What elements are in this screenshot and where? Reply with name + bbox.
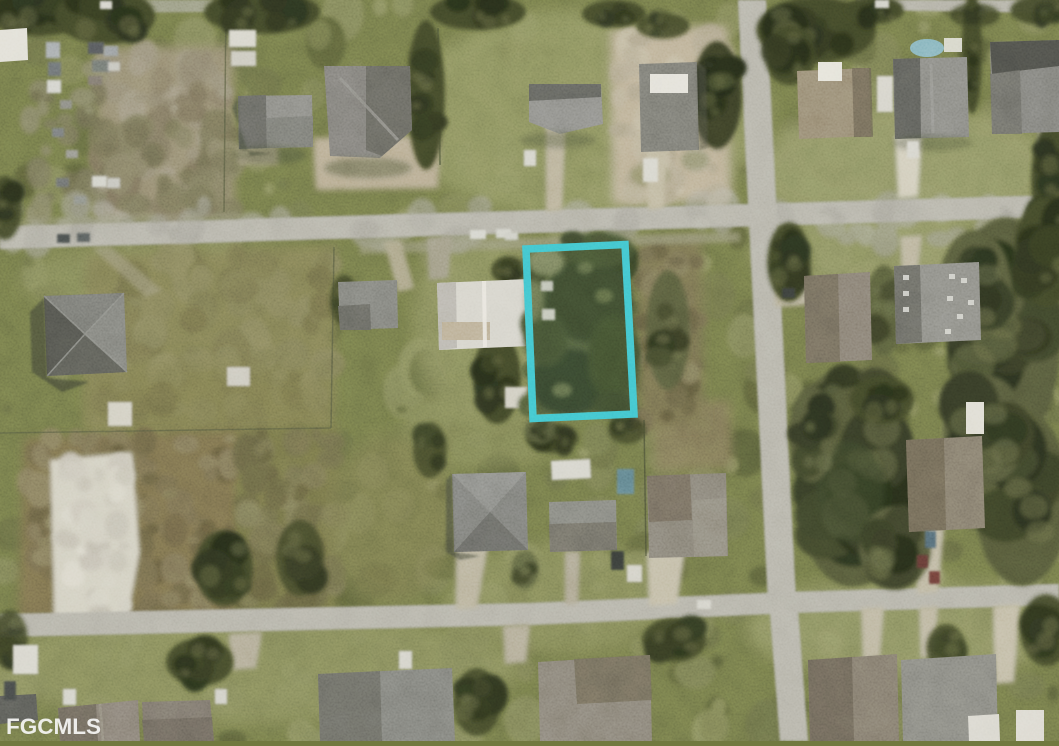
svg-text:FGCMLS: FGCMLS: [6, 714, 101, 739]
